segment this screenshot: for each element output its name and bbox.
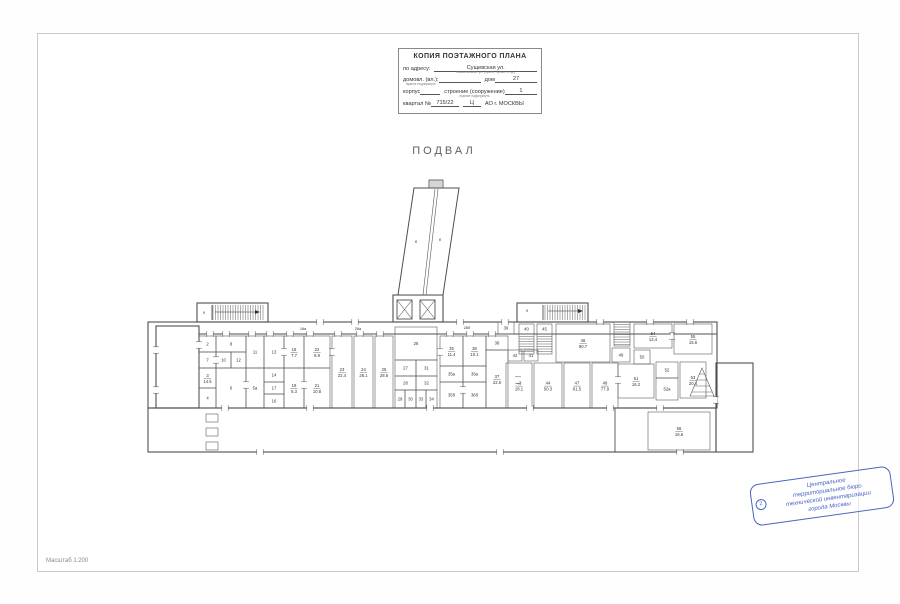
room-number: 31 (424, 366, 429, 371)
door-gap (497, 451, 503, 453)
door-gap (462, 387, 464, 393)
room-number: 46 (581, 338, 586, 343)
wall-stub (206, 428, 218, 436)
door-gap (715, 397, 717, 403)
room-number: 36б (471, 393, 479, 398)
room-number: 17 (272, 386, 277, 391)
room-number: 14 (272, 373, 277, 378)
room-number: 51 (634, 376, 639, 381)
room-number: 40 (524, 327, 529, 332)
room-number: 45 (542, 327, 547, 332)
room-area: 16.2 (632, 382, 641, 387)
room-number: 49 (619, 353, 624, 358)
door-gap (671, 333, 673, 339)
wall-outline (156, 326, 199, 408)
door-gap (303, 382, 305, 388)
room-number: 30 (408, 397, 413, 402)
room-number: 4 (206, 396, 209, 401)
room-area: 8.9 (314, 353, 320, 358)
door-gap (249, 333, 255, 335)
room-number: 42 (513, 353, 518, 358)
corridor-label: 26а (355, 327, 362, 331)
door-gap (447, 333, 453, 335)
room-area: 6.3 (291, 389, 297, 394)
room-number: 37 (495, 374, 500, 379)
wall-outline (148, 408, 716, 452)
room-area: 22.4 (338, 373, 347, 378)
door-gap (677, 451, 683, 453)
room-number: 24 (361, 367, 366, 372)
corridor-label: 9 (526, 309, 528, 313)
room-area: 20.4 (689, 381, 698, 386)
corridor-label: 9 (203, 311, 205, 315)
door-gap (245, 382, 247, 388)
door-gap (687, 321, 693, 323)
door-gap (597, 321, 603, 323)
door-gap (527, 407, 533, 409)
room-number: 10 (221, 358, 226, 363)
room-number: 29 (398, 397, 403, 402)
door-gap (617, 377, 619, 383)
room-area: 61.5 (573, 386, 582, 391)
room-number: 12 (236, 358, 241, 363)
room-number: 26 (414, 341, 419, 346)
room-number: 35 (449, 346, 454, 351)
room-number: 50 (640, 355, 645, 360)
room-number: 33 (419, 397, 424, 402)
room-area: 13.4 (649, 337, 658, 342)
door-gap (307, 407, 313, 409)
room-number: 23 (340, 367, 345, 372)
room-area: 28.6 (380, 373, 389, 378)
ramp-outline (398, 188, 459, 295)
door-gap (215, 357, 217, 363)
room-number: 11 (253, 350, 258, 355)
door-gap (657, 407, 663, 409)
stamp-number: 2 (755, 499, 767, 511)
door-gap (517, 377, 519, 383)
room-number: 56 (677, 426, 682, 431)
door-gap (647, 321, 653, 323)
room-number: 19 (292, 383, 297, 388)
corridor-label: 26б (464, 326, 471, 330)
door-gap (357, 333, 363, 335)
room-area: 22.5 (493, 380, 502, 385)
room-number: 47 (575, 381, 580, 386)
door-gap (207, 333, 213, 335)
room-area: 16.6 (675, 432, 684, 437)
room-number: 13 (272, 350, 277, 355)
room-number: 8 (230, 342, 233, 347)
room-area: 10.8 (313, 389, 322, 394)
room-number: 7 (206, 358, 209, 363)
door-gap (352, 321, 358, 323)
door-gap (257, 451, 263, 453)
door-gap (331, 349, 333, 355)
door-gap (377, 333, 383, 335)
room-area: 90.7 (579, 344, 588, 349)
room-number: 36а (471, 372, 479, 377)
door-gap (467, 333, 473, 335)
room-number: 2 (206, 342, 209, 347)
room-area: 7.7 (291, 353, 297, 358)
room-area: 50.3 (544, 386, 553, 391)
door-gap (439, 349, 441, 355)
door-gap (267, 333, 273, 335)
door-gap (317, 321, 323, 323)
room-number: 25 (382, 367, 387, 372)
scale-label: Масштаб 1:200 (46, 558, 88, 564)
wall-outline (393, 295, 443, 322)
door-gap (155, 387, 157, 393)
room-number: 35б (448, 393, 456, 398)
room-number: 39 (504, 326, 509, 331)
room-number: 53 (691, 375, 696, 380)
room-number: 55 (691, 334, 696, 339)
room-area: 28.1 (359, 373, 368, 378)
room-number: 32 (424, 381, 429, 386)
room-number: 44 (546, 381, 551, 386)
door-gap (283, 349, 285, 355)
door-gap (335, 333, 341, 335)
room-number: 21 (315, 383, 320, 388)
room-area: 10.1 (470, 352, 479, 357)
room-number: 6 (230, 386, 233, 391)
room-area: 11.4 (448, 352, 457, 357)
room-number: 52а (664, 387, 672, 392)
door-gap (607, 407, 613, 409)
room-number: 38 (495, 341, 500, 346)
room-number: 35а (448, 372, 456, 377)
wall-stub (206, 414, 218, 422)
door-gap (427, 407, 433, 409)
wall-stub (206, 442, 218, 450)
room-number: 18 (292, 347, 297, 352)
door-gap (489, 333, 495, 335)
door-gap (223, 333, 229, 335)
wall-outline (716, 363, 753, 452)
room-number: 48 (603, 381, 608, 386)
room-number: 16 (272, 399, 277, 404)
room-number: 5а (253, 386, 258, 391)
room-number: 41 (529, 353, 534, 358)
room-area: 15.6 (689, 340, 698, 345)
scanned-floor-plan-page: КОПИЯ ПОЭТАЖНОГО ПЛАНА по адресу: Сущевс… (0, 0, 900, 604)
room-area: 14.5 (203, 379, 212, 384)
room-number: 34 (429, 397, 434, 402)
room-number: 27 (403, 366, 408, 371)
room-number: 22 (315, 347, 320, 352)
room-number: 3 (206, 373, 209, 378)
door-gap (457, 321, 463, 323)
door-gap (502, 321, 508, 323)
room-number: 54 (651, 331, 656, 336)
door-gap (307, 333, 313, 335)
ramp-arrow-head (255, 310, 260, 314)
door-gap (198, 342, 200, 348)
door-gap (287, 333, 293, 335)
room-number: 36 (472, 346, 477, 351)
corridor-label: 16а (300, 327, 307, 331)
room-number: 52 (665, 368, 670, 373)
door-gap (222, 407, 228, 409)
room-area: 18.1 (515, 386, 524, 391)
room-area: 77.9 (601, 386, 610, 391)
room-number: 28 (403, 381, 408, 386)
wall-outline (148, 322, 717, 408)
door-gap (155, 347, 157, 353)
